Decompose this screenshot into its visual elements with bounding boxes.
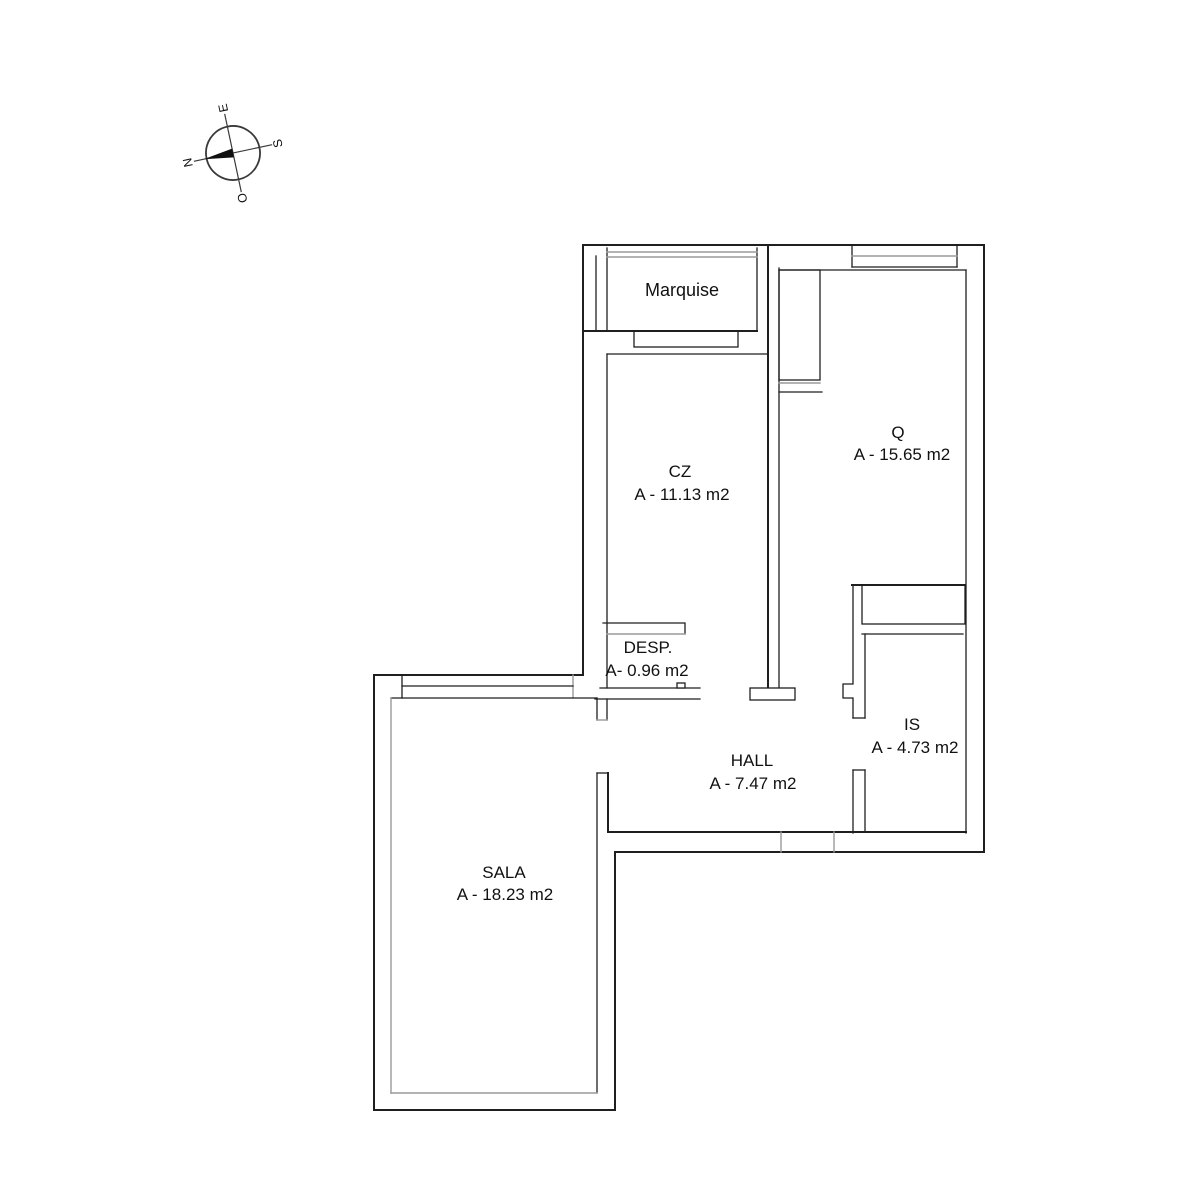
room-area-desp: A- 0.96 m2 [605, 661, 688, 680]
is-closet [862, 585, 965, 624]
is-room-walls [843, 585, 966, 833]
compass-label-south: S [270, 138, 285, 149]
room-label-hall: HALL [731, 751, 774, 770]
compass-label-west: O [235, 192, 251, 205]
compass-label-east: E [216, 102, 231, 113]
room-area-q: A - 15.65 m2 [854, 445, 950, 464]
floor-plan-page: N E S O [0, 0, 1200, 1200]
q-closet [779, 270, 820, 380]
compass-label-north: N [180, 157, 196, 169]
room-label-marquise: Marquise [645, 280, 719, 300]
floor-plan-drawing: N E S O [0, 0, 1200, 1200]
room-area-hall: A - 7.47 m2 [710, 774, 797, 793]
cz-door-hinge-bump [677, 683, 685, 688]
desp-shelf-line [603, 623, 685, 634]
compass-rose: N E S O [171, 93, 296, 214]
room-area-cz: A - 11.13 m2 [634, 485, 729, 504]
room-label-desp: DESP. [624, 638, 673, 657]
outer-walls [583, 245, 984, 852]
entry-step [634, 331, 738, 347]
room-area-sala: A - 18.23 m2 [457, 885, 553, 904]
room-label-is: IS [904, 715, 920, 734]
room-label-q: Q [891, 423, 904, 442]
cz-door-jamb-cap [750, 688, 795, 700]
cz-room-walls [607, 245, 795, 700]
is-left-wall-upper-with-hinge-notch [843, 585, 853, 718]
desp-closet-walls [603, 623, 685, 634]
room-label-cz: CZ [669, 462, 692, 481]
room-label-sala: SALA [482, 863, 526, 882]
room-labels: Marquise CZ A - 11.13 m2 Q A - 15.65 m2 … [457, 280, 959, 904]
room-area-is: A - 4.73 m2 [872, 738, 959, 757]
